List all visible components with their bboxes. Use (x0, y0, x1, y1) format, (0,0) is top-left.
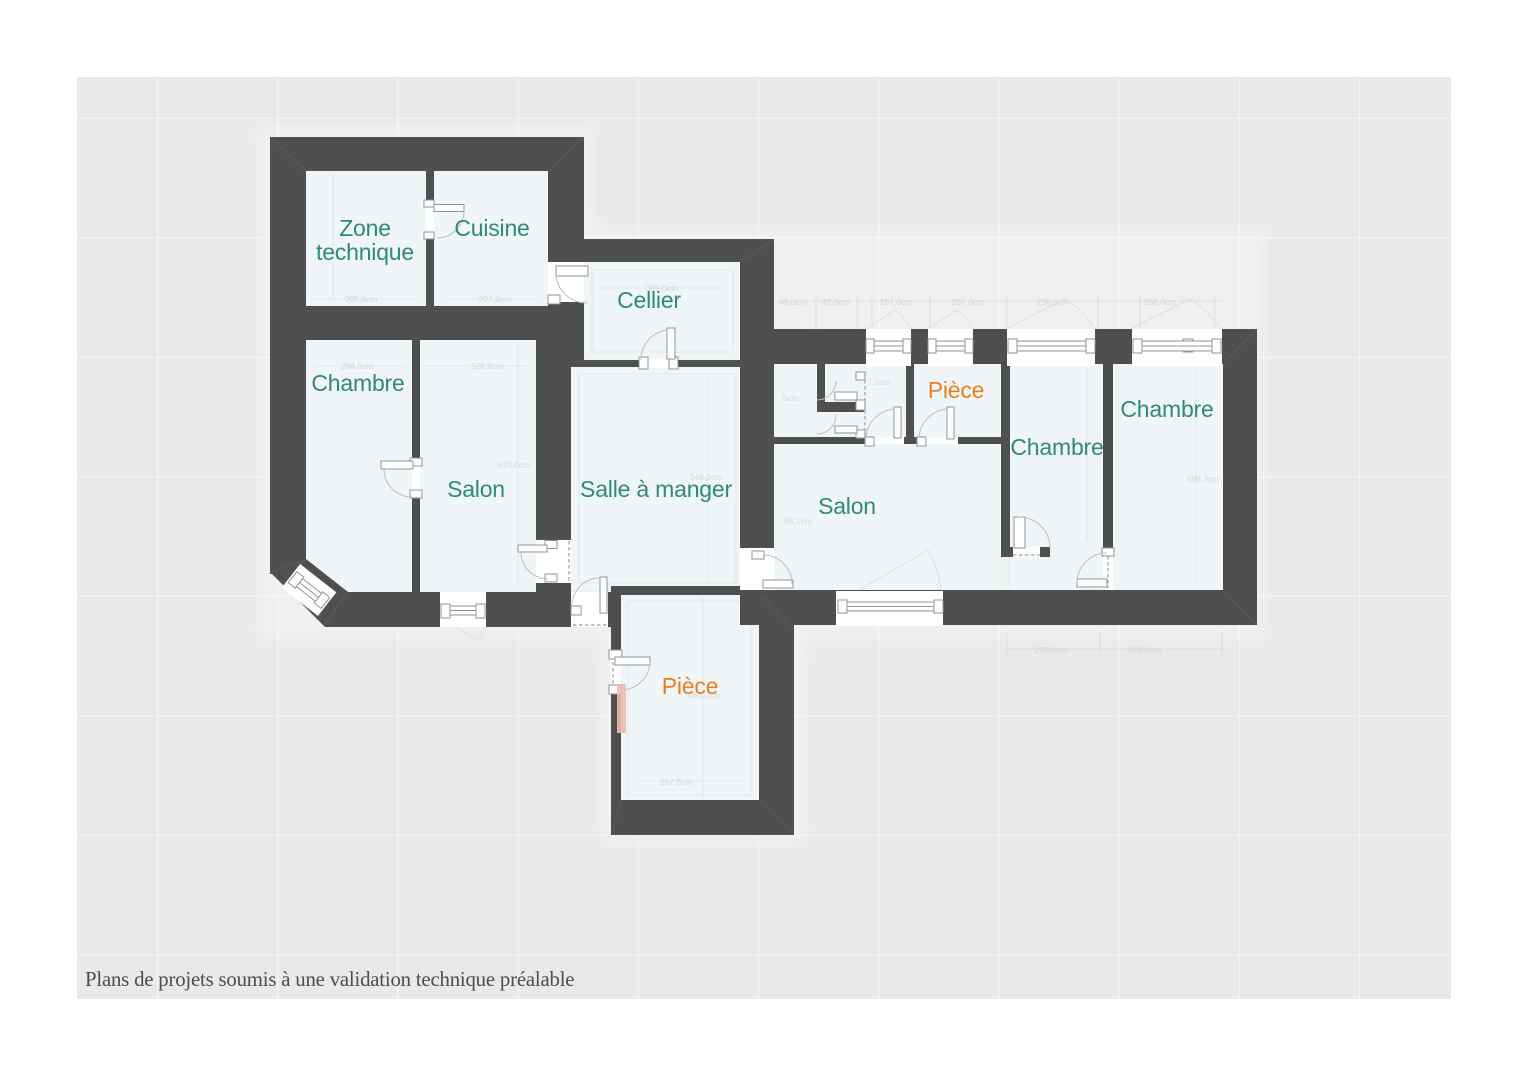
svg-text:236,0cm: 236,0cm (1035, 645, 1068, 655)
svg-text:42,0cm: 42,0cm (822, 297, 850, 307)
svg-text:7,0cm: 7,0cm (867, 377, 890, 387)
svg-text:Salon: Salon (818, 493, 876, 519)
svg-text:Chambre: Chambre (1010, 434, 1103, 460)
svg-text:Cellier: Cellier (617, 287, 681, 313)
svg-text:Chambre: Chambre (1120, 396, 1213, 422)
svg-text:297,0cm: 297,0cm (479, 294, 512, 304)
svg-text:268,0cm: 268,0cm (1129, 645, 1162, 655)
svg-text:Zone: Zone (339, 215, 391, 241)
svg-text:268,0cm: 268,0cm (1144, 297, 1177, 307)
svg-text:Chambre: Chambre (311, 370, 404, 396)
svg-text:236,0cm: 236,0cm (1037, 297, 1070, 307)
svg-text:610,0cm: 610,0cm (498, 460, 531, 470)
svg-text:305,0cm: 305,0cm (345, 294, 378, 304)
svg-text:328,0cm: 328,0cm (471, 361, 504, 371)
svg-text:Cuisine: Cuisine (454, 215, 529, 241)
svg-text:96,1cm: 96,1cm (784, 516, 812, 526)
svg-text:45,0cm: 45,0cm (779, 297, 807, 307)
svg-text:Salle à manger: Salle à manger (580, 476, 732, 502)
svg-text:Pièce: Pièce (662, 673, 719, 699)
svg-text:Plans de projets soumis à une: Plans de projets soumis à une validation… (85, 968, 574, 991)
svg-text:257,0cm: 257,0cm (660, 777, 693, 787)
svg-text:5cm: 5cm (783, 393, 799, 403)
svg-text:Salon: Salon (447, 476, 505, 502)
svg-text:Pièce: Pièce (928, 377, 985, 403)
svg-text:107,0cm: 107,0cm (880, 297, 913, 307)
svg-text:569,3cm: 569,3cm (1187, 474, 1220, 484)
svg-text:237,0cm: 237,0cm (952, 297, 985, 307)
svg-text:technique: technique (316, 239, 414, 265)
